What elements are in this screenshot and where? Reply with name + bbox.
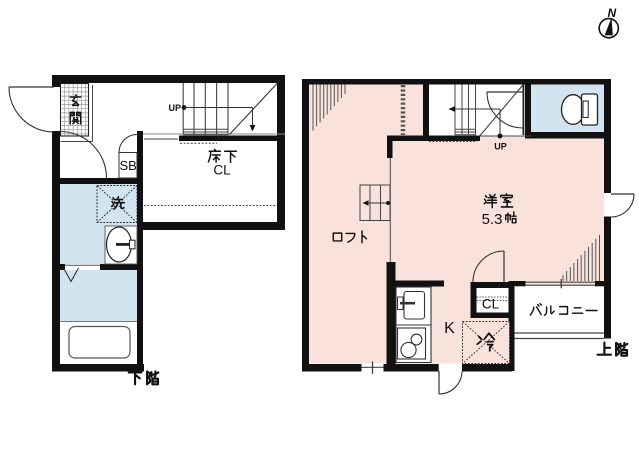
svg-text:K: K [444, 320, 455, 337]
svg-text:UP: UP [494, 142, 507, 152]
svg-text:CL: CL [482, 297, 500, 312]
svg-text:SB: SB [120, 158, 137, 173]
svg-text:N: N [607, 6, 616, 20]
svg-text:CL: CL [213, 163, 231, 178]
svg-text:UP: UP [168, 103, 181, 113]
svg-text:5.3: 5.3 [482, 211, 503, 228]
